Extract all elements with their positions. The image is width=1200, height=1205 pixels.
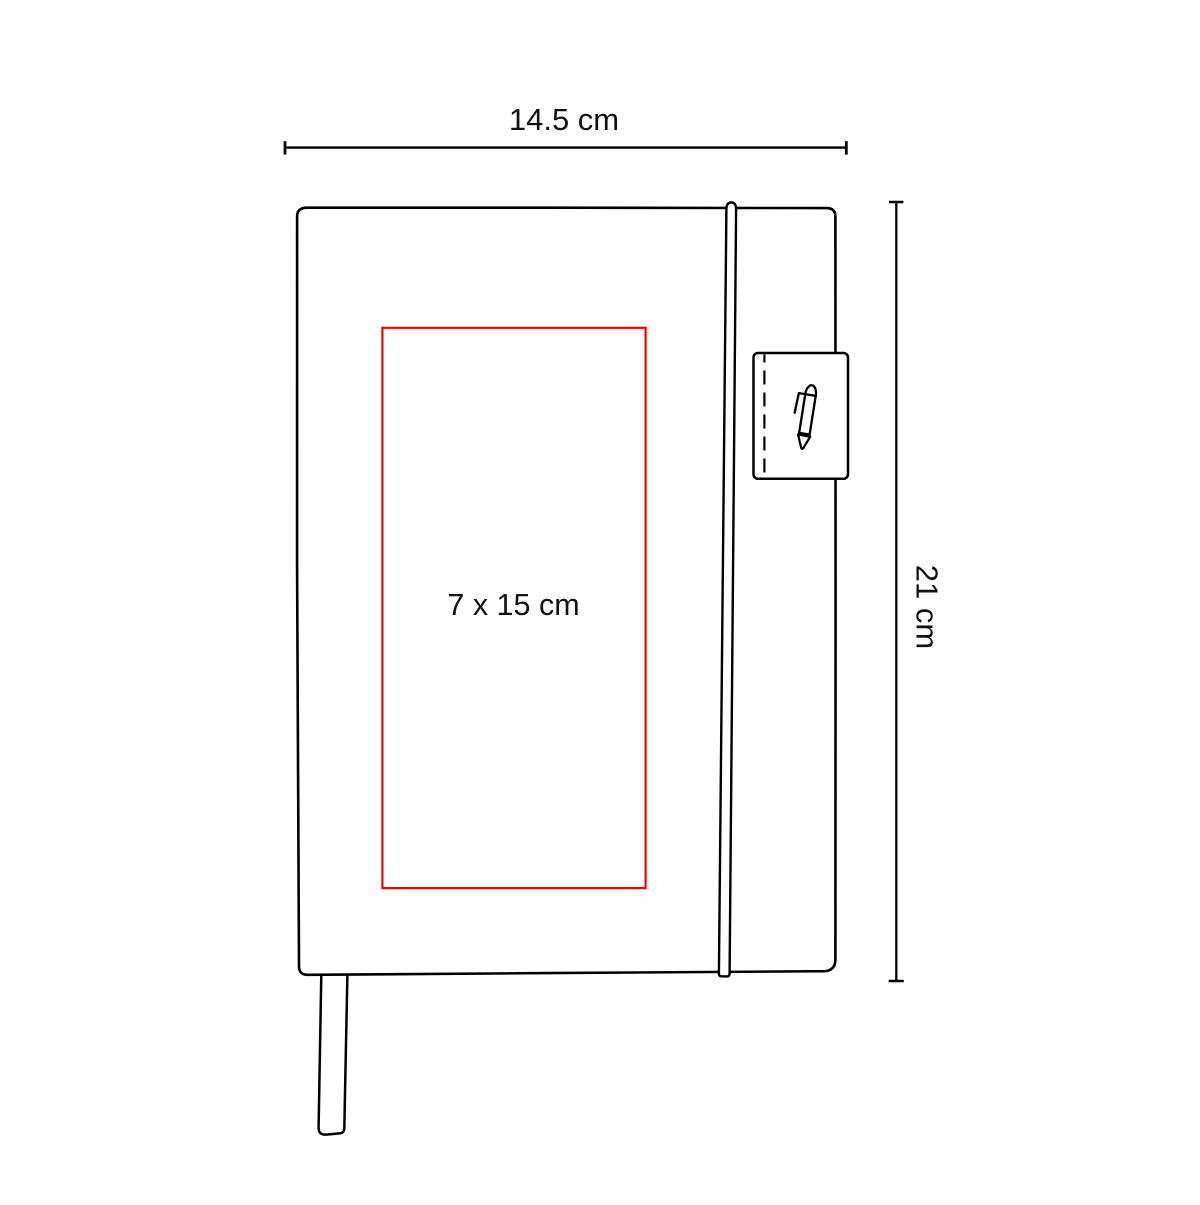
svg-text:21 cm: 21 cm bbox=[910, 565, 945, 649]
svg-text:7 x 15 cm: 7 x 15 cm bbox=[447, 588, 579, 622]
svg-text:14.5 cm: 14.5 cm bbox=[509, 102, 619, 137]
